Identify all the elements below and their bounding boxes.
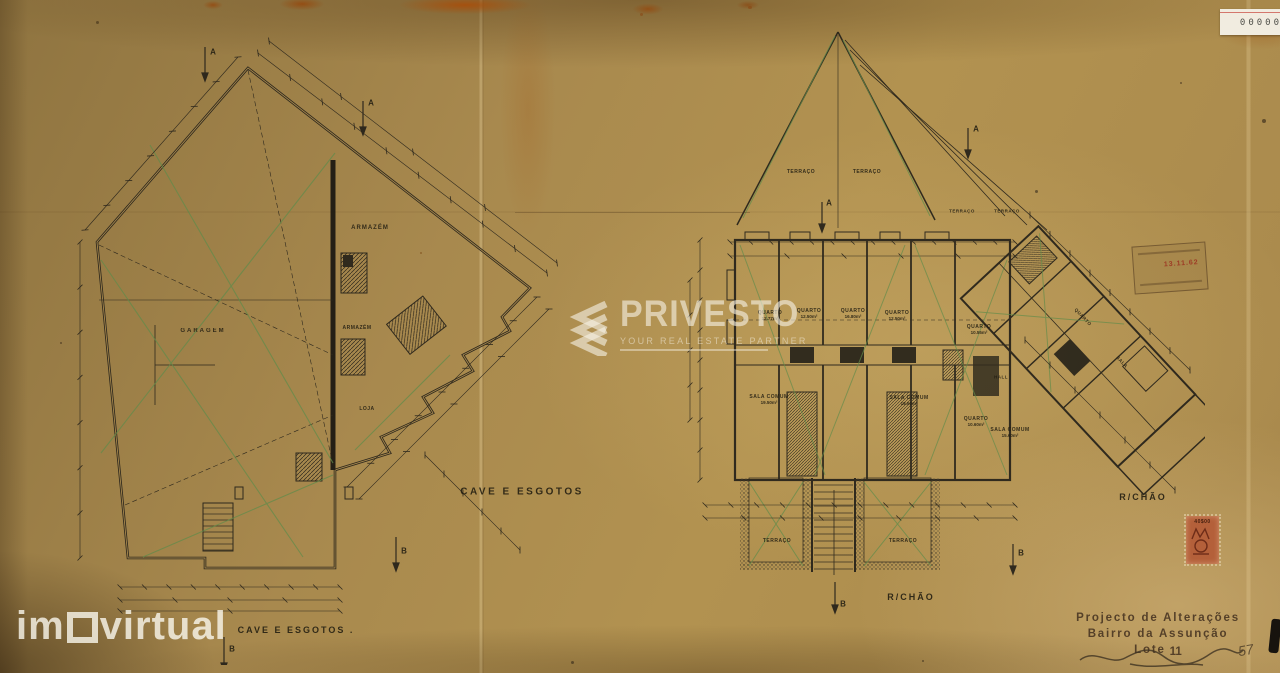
sticker-red-line xyxy=(1220,12,1280,13)
stamp-date: 13.11.62 xyxy=(1164,259,1199,268)
privesto-rule xyxy=(620,349,768,351)
section-marker-b: B xyxy=(229,645,235,654)
privesto-watermark: PRIVESTO YOUR REAL ESTATE PARTNER xyxy=(562,296,808,356)
pencil-crease-line xyxy=(515,212,750,213)
privesto-chevrons-icon xyxy=(562,300,610,356)
imovirtual-suffix: virtual xyxy=(100,604,227,649)
plan-caption-cave-bottom: CAVE E ESGOTOS . xyxy=(238,625,355,635)
fiscal-revenue-stamp: 40$00 xyxy=(1186,516,1219,564)
room-label-quarto-4: QUARTO12.50m² xyxy=(885,310,910,322)
edge-ink-mark xyxy=(1268,619,1280,654)
section-marker-b: B xyxy=(401,547,407,556)
room-label-garagem: GARAGEM xyxy=(180,328,225,334)
section-marker-b: B xyxy=(840,600,846,609)
fiscal-stamp-emblem-icon xyxy=(1189,525,1216,557)
room-label-terraco-5: TERRAÇO xyxy=(763,538,791,544)
room-label-terraco-1: TERRAÇO xyxy=(787,169,815,175)
handwritten-number: 57 xyxy=(1237,641,1255,659)
room-label-terraco-2: TERRAÇO xyxy=(853,169,881,175)
barcode-sticker: 00000 xyxy=(1220,9,1280,35)
room-label-quarto-3: QUARTO16.80m² xyxy=(841,308,866,320)
privesto-brand-text: PRIVESTO xyxy=(620,296,808,333)
imovirtual-o-mark xyxy=(67,612,98,643)
room-label-armazem-lower: ARMAZÉM xyxy=(342,325,371,331)
plan-caption-rchao-side: R/CHÃO xyxy=(1119,492,1167,502)
blueprint-sheet: ARMAZÉM GARAGEM ARMAZÉM LOJA CAVE E ESGO… xyxy=(0,0,1280,673)
imovirtual-watermark: im virtual xyxy=(16,604,227,649)
room-label-sala-1: SALA COMUM19.50m² xyxy=(749,394,788,406)
room-label-sala-3: SALA COMUM15.60m² xyxy=(990,427,1029,439)
signature-handwriting xyxy=(1075,640,1250,670)
imovirtual-prefix: im xyxy=(16,604,65,649)
room-label-quarto-6: QUARTO10.60m² xyxy=(964,416,989,428)
room-label-loja: LOJA xyxy=(359,406,374,412)
section-marker-a: A xyxy=(210,48,216,57)
room-label-armazem-upper: ARMAZÉM xyxy=(351,225,389,231)
section-marker-a: A xyxy=(973,125,979,134)
room-label-sala-2: SALA COMUM19.50m² xyxy=(889,395,928,407)
sticker-digits: 00000 xyxy=(1240,18,1280,28)
room-label-terraco-3: TERRAÇO xyxy=(949,209,975,214)
stamp-text-bar xyxy=(1138,249,1200,255)
title-line-1: Projecto de Alterações xyxy=(1058,610,1258,626)
floor-plan-left-drawing xyxy=(55,25,575,665)
section-marker-b: B xyxy=(1018,549,1024,558)
plan-caption-rchao-bottom: R/CHÃO xyxy=(887,592,935,602)
section-marker-a: A xyxy=(826,199,832,208)
room-label-terraco-6: TERRAÇO xyxy=(889,538,917,544)
ink-date-stamp: 13.11.62 xyxy=(1131,241,1208,294)
room-label-terraco-4: TERRAÇO xyxy=(994,209,1020,214)
stamp-text-bar xyxy=(1140,280,1202,286)
room-label-quarto-5: QUARTO10.55m² xyxy=(967,324,992,336)
plan-caption-cave-mid: CAVE E ESGOTOS xyxy=(460,487,584,498)
room-label-hall: HALL xyxy=(994,375,1008,380)
privesto-tagline-text: YOUR REAL ESTATE PARTNER xyxy=(620,336,808,346)
section-marker-a: A xyxy=(368,99,374,108)
